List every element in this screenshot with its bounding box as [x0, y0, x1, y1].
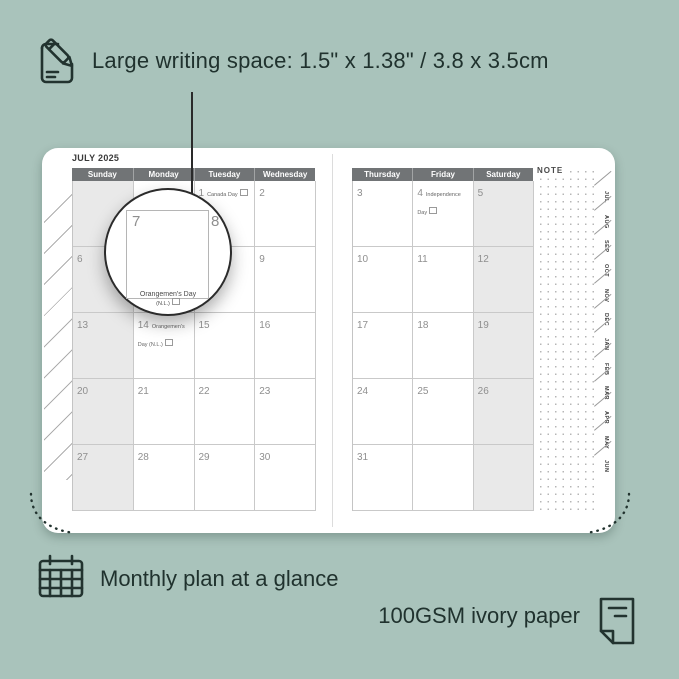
- magnified-day-number: 7: [132, 213, 140, 230]
- calendar-cell: 23: [255, 379, 316, 445]
- calendar-cell: 26: [474, 379, 534, 445]
- month-tab-feb: FEB: [598, 357, 614, 382]
- right-grid: 34Independence Day510111217181924252631: [352, 181, 534, 511]
- calendar-cell: 11: [413, 247, 473, 313]
- calendar-cell: 18: [413, 313, 473, 379]
- feature-caption-monthly-plan: Monthly plan at a glance: [100, 566, 339, 592]
- month-tab-oct: OCT: [598, 259, 614, 284]
- page-curl-dots-right: [582, 492, 634, 536]
- calendar-cell: 2: [255, 181, 316, 247]
- calendar-cell: 13: [73, 313, 134, 379]
- weekday-label: Thursday: [352, 168, 412, 181]
- holiday-checkbox: [165, 339, 173, 346]
- month-tab-dec: DEC: [598, 308, 614, 333]
- calendar-grid-icon: [36, 552, 86, 602]
- month-tab-jun: JUN: [598, 455, 614, 480]
- month-tab-aug: AUG: [598, 210, 614, 235]
- feature-caption-writing-space: Large writing space: 1.5" x 1.38" / 3.8 …: [92, 48, 549, 74]
- calendar-cell: [474, 445, 534, 511]
- callout-connector-line: [191, 92, 193, 194]
- calendar-cell: 27: [73, 445, 134, 511]
- holiday-checkbox: [429, 207, 437, 214]
- month-tab-apr: APR: [598, 406, 614, 431]
- calendar-cell: 19: [474, 313, 534, 379]
- calendar-cell: 5: [474, 181, 534, 247]
- calendar-cell: 30: [255, 445, 316, 511]
- calendar-cell: 9: [255, 247, 316, 313]
- calendar-cell: 17: [353, 313, 413, 379]
- month-title: JULY 2025: [72, 153, 119, 163]
- calendar-cell: 21: [134, 379, 195, 445]
- weekday-label: Wednesday: [254, 168, 315, 181]
- calendar-cell: 28: [134, 445, 195, 511]
- calendar-cell: 15: [195, 313, 256, 379]
- weekday-label: Saturday: [473, 168, 533, 181]
- magnified-holiday-text: Orangemen's Day (N.L.): [106, 291, 230, 307]
- weekday-label: Sunday: [72, 168, 133, 181]
- calendar-cell: 20: [73, 379, 134, 445]
- note-dot-grid: NOTE: [537, 168, 598, 510]
- weekday-label: Friday: [412, 168, 472, 181]
- calendar-cell: 22: [195, 379, 256, 445]
- calendar-cell: 14Orangemen's Day (N.L.): [134, 313, 195, 379]
- weekday-label: Monday: [133, 168, 194, 181]
- page-spine: [332, 154, 333, 527]
- paper-icon: [594, 595, 640, 647]
- pencil-note-icon: [36, 34, 84, 88]
- magnified-day-number: 8: [211, 213, 219, 230]
- holiday-checkbox: [240, 189, 248, 196]
- right-weekday-header: ThursdayFridaySaturday: [352, 168, 533, 181]
- page-curl-dots-left: [26, 492, 78, 536]
- left-weekday-header: SundayMondayTuesdayWednesday: [72, 168, 315, 181]
- binding-hatch-decoration: [44, 192, 72, 480]
- calendar-cell: 3: [353, 181, 413, 247]
- calendar-cell: 4Independence Day: [413, 181, 473, 247]
- calendar-cell: [413, 445, 473, 511]
- magnifier-circle: 7 8 Orangemen's Day (N.L.): [104, 188, 232, 316]
- calendar-cell: 24: [353, 379, 413, 445]
- holiday-checkbox: [172, 298, 180, 305]
- note-label: NOTE: [537, 166, 566, 175]
- calendar-cell: 12: [474, 247, 534, 313]
- calendar-cell: 10: [353, 247, 413, 313]
- calendar-cell: 29: [195, 445, 256, 511]
- calendar-cell: 31: [353, 445, 413, 511]
- weekday-label: Tuesday: [194, 168, 255, 181]
- month-tab-strip: JULAUGSEPOCTNOVDECJANFEBMARAPRMAYJUN: [598, 185, 614, 479]
- calendar-cell: 25: [413, 379, 473, 445]
- feature-caption-paper: 100GSM ivory paper: [378, 603, 580, 629]
- calendar-cell: 16: [255, 313, 316, 379]
